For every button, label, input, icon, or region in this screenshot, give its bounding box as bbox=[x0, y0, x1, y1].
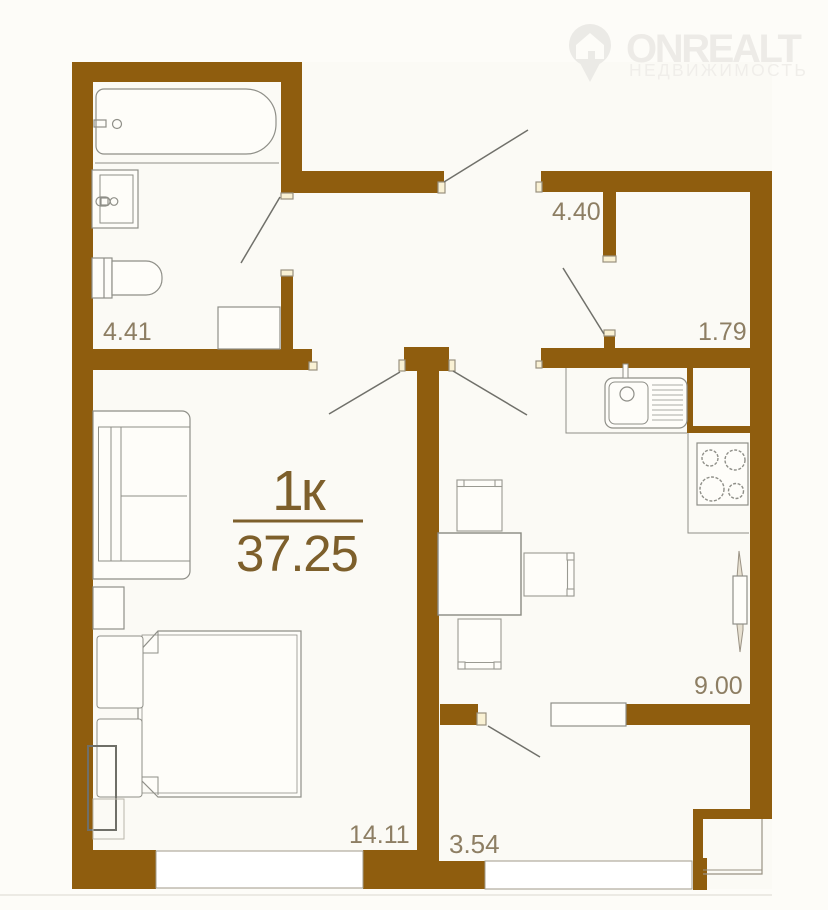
svg-text:4.41: 4.41 bbox=[103, 318, 152, 346]
svg-text:37.25: 37.25 bbox=[236, 525, 358, 582]
svg-text:4.40: 4.40 bbox=[552, 198, 601, 226]
svg-text:1.79: 1.79 bbox=[698, 318, 747, 346]
svg-text:НЕДВИЖИМОСТЬ: НЕДВИЖИМОСТЬ bbox=[629, 60, 808, 80]
svg-text:14.11: 14.11 bbox=[349, 821, 410, 849]
svg-text:9.00: 9.00 bbox=[694, 672, 743, 700]
svg-text:1к: 1к bbox=[272, 459, 327, 523]
svg-text:3.54: 3.54 bbox=[449, 829, 500, 859]
